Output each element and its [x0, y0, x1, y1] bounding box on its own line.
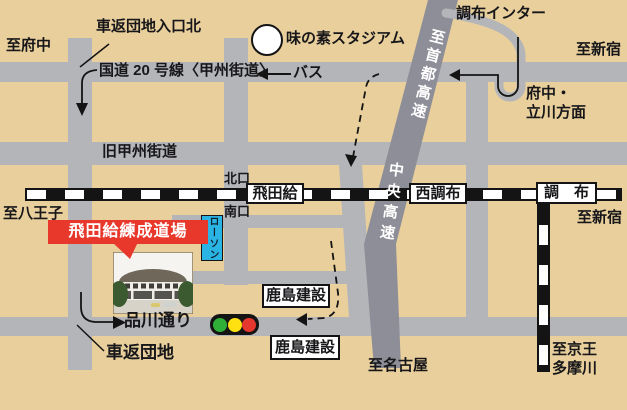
label-to-shinjuku-rail: 至新宿 — [577, 209, 622, 227]
label-to-hachioji: 至八王子 — [3, 205, 63, 223]
label-to-nagoya: 至名古屋 — [368, 357, 428, 375]
station-nishichofu: 西調布 — [409, 183, 467, 204]
car — [151, 303, 160, 307]
station-chofu: 調 布 — [536, 182, 597, 204]
chofu-inter-ramp — [446, 13, 521, 97]
keio-sagamihara-line-railway — [537, 203, 550, 372]
label-to-keio-line1: 至京王 — [552, 341, 597, 360]
car — [163, 302, 176, 307]
traffic-light-red — [242, 318, 256, 332]
label-route20: 国道 20 号線〈甲州街道〉 — [99, 62, 274, 80]
label-fuchu-tachikawa-line2: 立川方面 — [526, 104, 586, 123]
label-fuchu-tachikawa-line1: 府中・ — [526, 85, 586, 104]
label-to-fuchu: 至府中 — [6, 37, 51, 55]
access-map: 飛田給 西調布 調 布 鹿島建設 鹿島建設 ローソン 飛田給練成道場 至首都高速… — [0, 0, 627, 410]
label-south-exit: 南口 — [224, 204, 250, 220]
dojo-banner: 飛田給練成道場 — [48, 220, 208, 244]
label-north-exit: 北口 — [224, 171, 250, 187]
label-to-keio-tamagawa: 至京王 多摩川 — [552, 341, 597, 379]
label-chofu-inter: 調布インター — [456, 5, 546, 23]
station-tobitakyu: 飛田給 — [246, 183, 304, 204]
label-kurumagaeshi-entrance: 車返団地入口北 — [96, 18, 201, 36]
kajima-box-2: 鹿島建設 — [270, 335, 340, 360]
traffic-light-green — [213, 318, 227, 332]
keio-line-railway — [25, 188, 622, 201]
kajima-box-1: 鹿島建設 — [262, 284, 330, 308]
traffic-light-icon — [210, 314, 259, 335]
stadium-marker-icon — [251, 24, 283, 56]
dojo-building-photo — [113, 252, 193, 314]
label-to-keio-line2: 多摩川 — [552, 360, 597, 379]
label-stadium: 味の素スタジアム — [286, 30, 405, 48]
traffic-light-yellow — [228, 318, 242, 332]
label-bus: バス — [293, 64, 323, 82]
label-old-koshukaido: 旧甲州街道 — [102, 143, 177, 161]
label-shinagawa-dori: 品川通り — [124, 311, 192, 332]
label-fuchu-tachikawa: 府中・ 立川方面 — [526, 85, 586, 123]
label-kurumagaeshi-danchi: 車返団地 — [106, 343, 174, 364]
label-to-shinjuku-road: 至新宿 — [576, 41, 621, 59]
